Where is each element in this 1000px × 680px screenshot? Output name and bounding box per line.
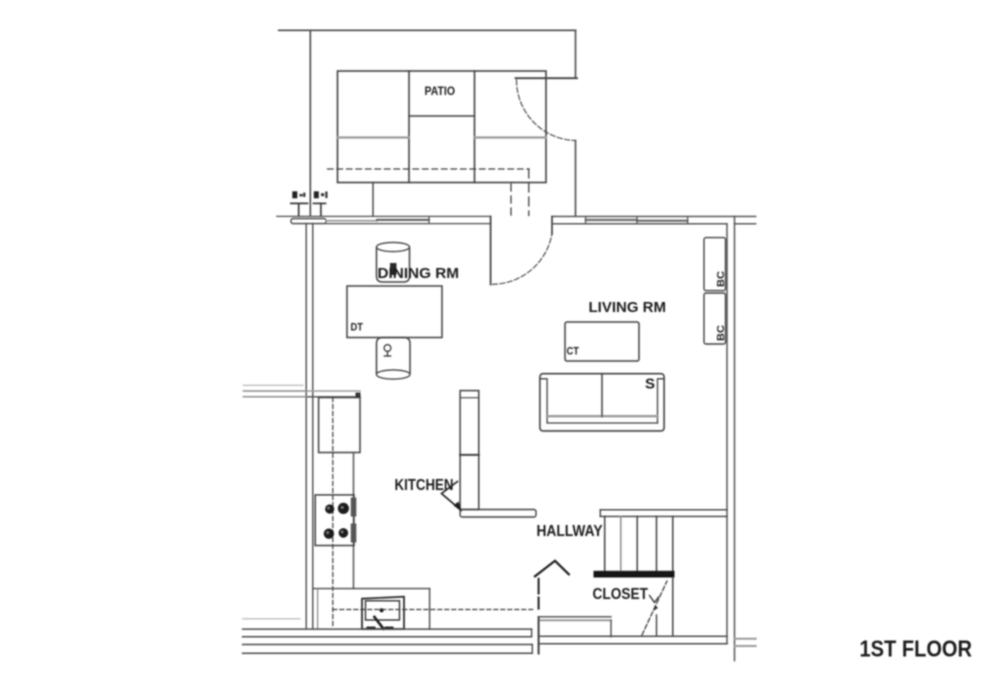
svg-text:LIVING RM: LIVING RM (589, 299, 667, 316)
svg-text:CLOSET: CLOSET (593, 586, 649, 603)
svg-text:S: S (645, 376, 655, 393)
svg-text:PATIO: PATIO (425, 84, 456, 98)
svg-text:1ST FLOOR: 1ST FLOOR (860, 636, 973, 662)
svg-text:DINING RM: DINING RM (378, 265, 460, 282)
svg-text:BC: BC (716, 271, 727, 287)
svg-text:DT: DT (351, 322, 364, 334)
svg-text:BC: BC (716, 325, 727, 341)
svg-text:HALLWAY: HALLWAY (537, 523, 603, 540)
svg-text:CT: CT (567, 346, 580, 358)
